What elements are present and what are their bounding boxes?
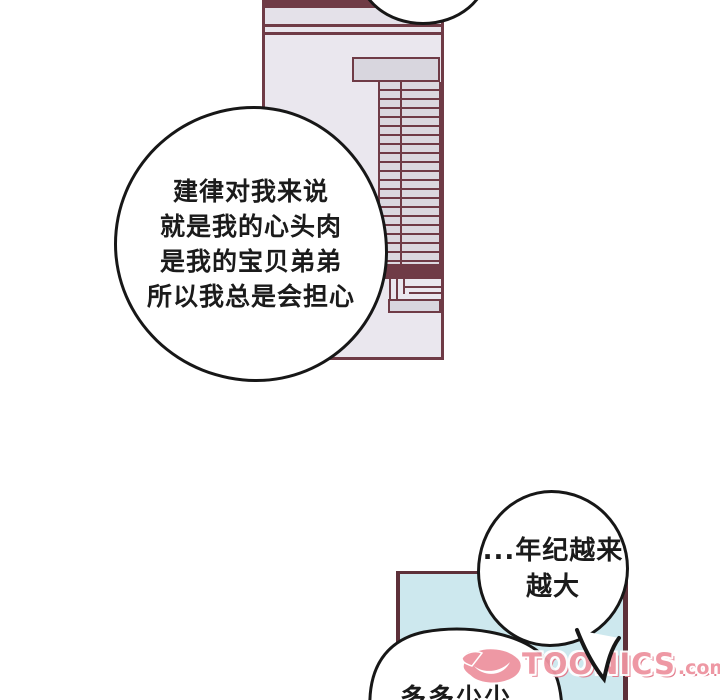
dialogue-line: 建律对我来说 xyxy=(147,174,355,209)
wall-trim-line xyxy=(265,32,441,35)
sill-detail-line xyxy=(396,279,398,299)
blind-cord xyxy=(400,82,402,264)
speech-bubble-main: 建律对我来说 就是我的心头肉 是我的宝贝弟弟 所以我总是会担心 xyxy=(114,106,388,382)
window-bench xyxy=(388,299,441,313)
dialogue-line: 就是我的心头肉 xyxy=(147,209,355,244)
blind-valance xyxy=(352,57,440,82)
comic-page: 多多少少 建律对我来说 就是我的心头肉 是我的宝贝弟弟 所以我总是会担心 ...… xyxy=(0,0,720,700)
dialogue-line: 是我的宝贝弟弟 xyxy=(147,244,355,279)
speech-bubble-tail xyxy=(540,620,640,700)
dialogue-line: 越大 xyxy=(483,569,624,605)
watermark-d-logo xyxy=(458,644,530,688)
dialogue-line: 所以我总是会担心 xyxy=(147,279,355,314)
sill-detail-line xyxy=(409,292,441,294)
venetian-blinds xyxy=(378,82,441,264)
sill-detail-line xyxy=(403,286,441,288)
watermark-suffix: .com xyxy=(678,648,720,688)
dialogue-line: ...年纪越来 xyxy=(483,533,624,569)
